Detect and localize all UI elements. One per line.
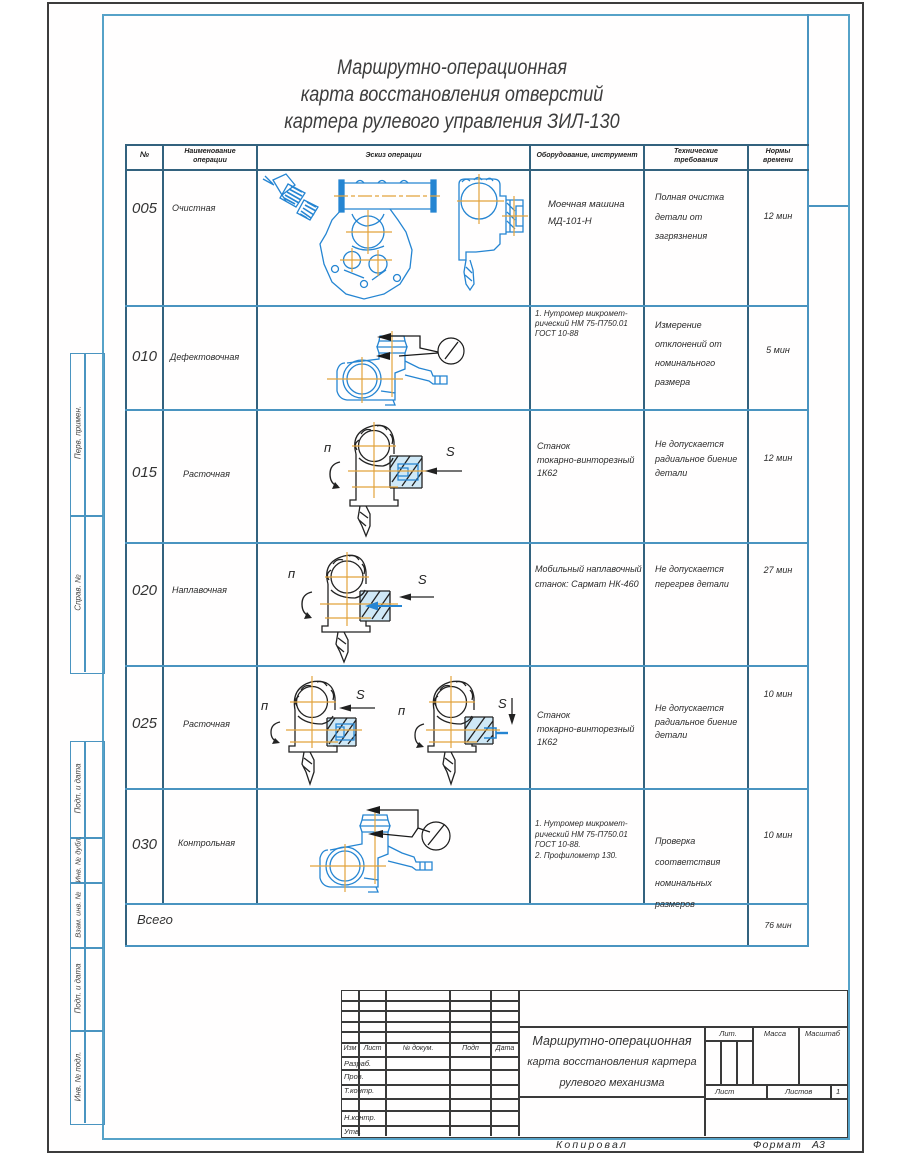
svg-text:п: п <box>398 703 405 718</box>
svg-text:п: п <box>288 566 295 581</box>
svg-text:S: S <box>498 696 507 711</box>
svg-text:S: S <box>356 687 365 702</box>
svg-text:п: п <box>324 440 331 455</box>
svg-text:S: S <box>446 444 455 459</box>
svg-text:п: п <box>261 698 268 713</box>
svg-text:S: S <box>418 572 427 587</box>
